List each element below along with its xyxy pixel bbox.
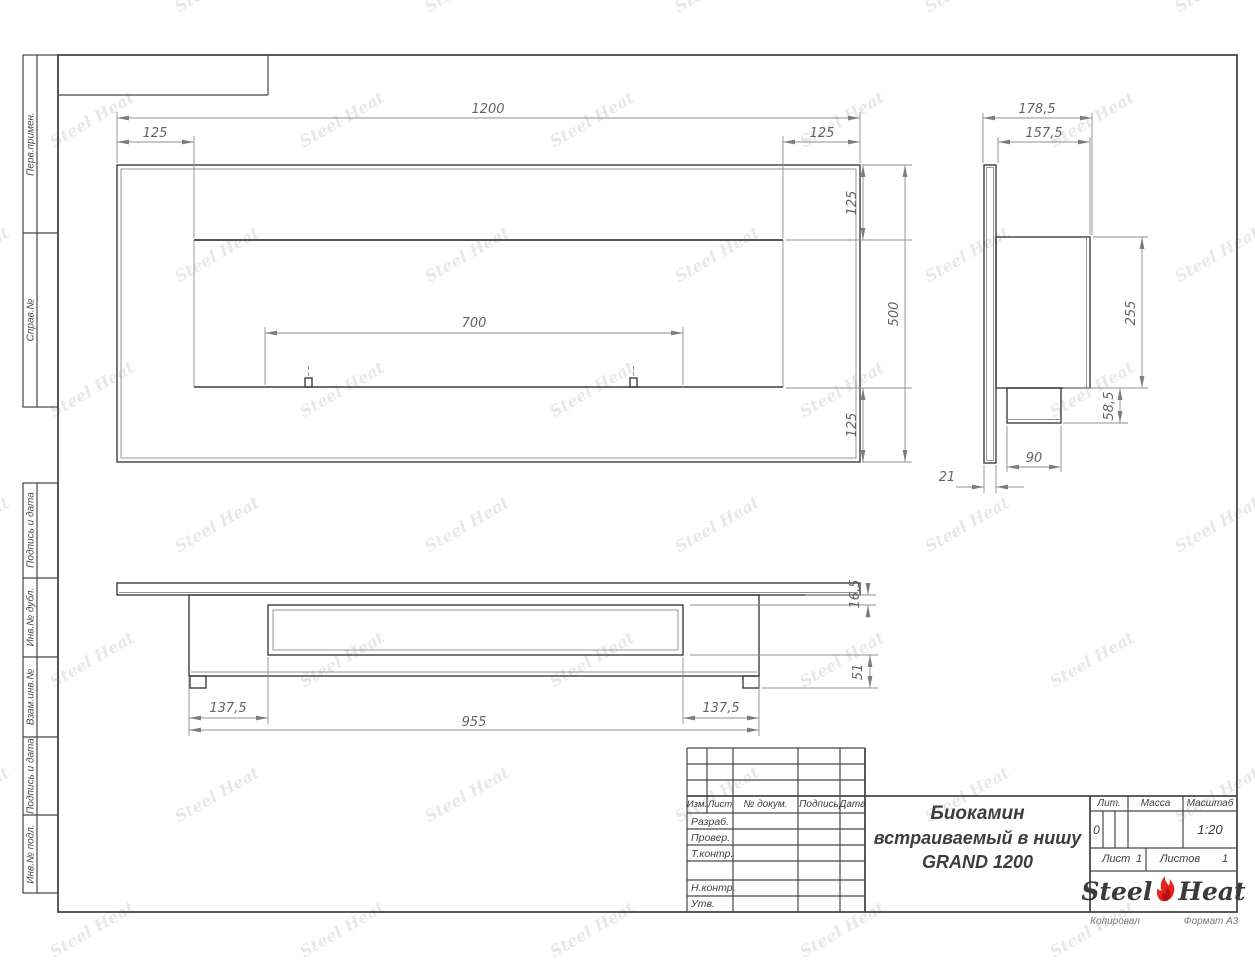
- dim-front-top-offset: 125: [845, 191, 860, 216]
- dim-bottom-left-offset: 137,5: [209, 701, 246, 716]
- drawing-sheet: Steel HeatSteel HeatSteel HeatSteel Heat…: [0, 0, 1255, 970]
- dim-bottom-gap: 16,5: [848, 580, 863, 609]
- tb-row-nkontr: Н.контр.: [691, 882, 735, 894]
- dim-side-spigot-height: 58,5: [1102, 392, 1117, 421]
- tb-mass-header: Масса: [1128, 796, 1183, 811]
- doc-title-line2: встраиваемый в нишу: [865, 826, 1090, 850]
- tb-lit-value: 0: [1090, 811, 1103, 848]
- dim-front-left-offset: 125: [143, 126, 168, 141]
- dim-front-height: 500: [887, 302, 902, 327]
- dim-side-spigot-width: 90: [1026, 451, 1043, 466]
- tb-row-prover: Провер.: [691, 832, 730, 844]
- sheet-frame: [23, 55, 1237, 912]
- tb-col-podpis: Подпись: [798, 796, 840, 813]
- sidebar-label-perv-primen: Перв.примен.: [26, 112, 37, 176]
- dim-side-box-height: 255: [1124, 301, 1139, 326]
- flame-icon: [1155, 875, 1176, 908]
- tb-sheet-value: 1: [1136, 853, 1142, 865]
- sidebar-label-podpis-data-1: Подпись и дата: [26, 492, 37, 568]
- tb-scale-header: Масштаб: [1183, 796, 1237, 811]
- dim-side-panel-thickness: 21: [939, 470, 956, 485]
- dim-front-right-offset: 125: [810, 126, 835, 141]
- sidebar-label-vzam-inv: Взам.инв.№: [26, 669, 37, 725]
- tb-row-razrab: Разраб.: [691, 816, 729, 828]
- sidebar-label-inv-dubl: Инв.№ дубл.: [26, 588, 37, 647]
- copied-label: Копировал: [1075, 914, 1155, 928]
- tb-scale-value: 1:20: [1183, 811, 1237, 848]
- dim-front-bottom-offset: 125: [845, 413, 860, 438]
- dim-bottom-foot-height: 51: [851, 664, 866, 681]
- sidebar-label-inv-podl: Инв.№ подл.: [26, 824, 37, 883]
- tb-col-dokum: № докум.: [733, 796, 798, 813]
- sidebar-label-sprav-no: Справ.№: [26, 299, 37, 342]
- tb-col-list: Лист: [707, 796, 733, 813]
- doc-title-line3: GRAND 1200: [865, 850, 1090, 874]
- dim-side-depth-box: 157,5: [1025, 126, 1062, 141]
- tb-sheets-label: Листов: [1160, 853, 1200, 865]
- dim-bottom-right-offset: 137,5: [702, 701, 739, 716]
- tb-row-tkontr: Т.контр.: [691, 848, 733, 860]
- tb-sheet-label: Лист: [1102, 853, 1130, 865]
- front-view: 1200 125 125 700 125 125 500: [117, 102, 912, 462]
- dim-front-burner: 700: [462, 316, 487, 331]
- dim-bottom-body-width: 955: [462, 715, 487, 730]
- tb-row-utv: Утв.: [691, 898, 715, 910]
- tb-lit-header: Лит.: [1090, 796, 1128, 811]
- side-view: 178,5 157,5 255 58,5 90 21: [939, 102, 1148, 493]
- dim-front-width: 1200: [471, 102, 504, 117]
- bottom-view: 137,5 137,5 955 16,5 51: [117, 580, 878, 736]
- steelheat-logo: Steel Heat: [1092, 872, 1235, 910]
- doc-title-line1: Биокамин: [865, 802, 1090, 826]
- burner-clip-left: [305, 366, 312, 387]
- logo-steel-text: Steel: [1081, 877, 1152, 906]
- sidebar-label-podpis-data-2: Подпись и дата: [26, 738, 37, 814]
- format-label: Формат А3: [1175, 914, 1247, 928]
- tb-sheets-value: 1: [1222, 853, 1228, 865]
- logo-heat-text: Heat: [1178, 877, 1245, 906]
- burner-clip-right: [630, 366, 637, 387]
- dim-side-depth-total: 178,5: [1018, 102, 1055, 117]
- tb-col-izm: Изм.: [687, 796, 707, 813]
- tb-col-data: Дата: [840, 796, 865, 813]
